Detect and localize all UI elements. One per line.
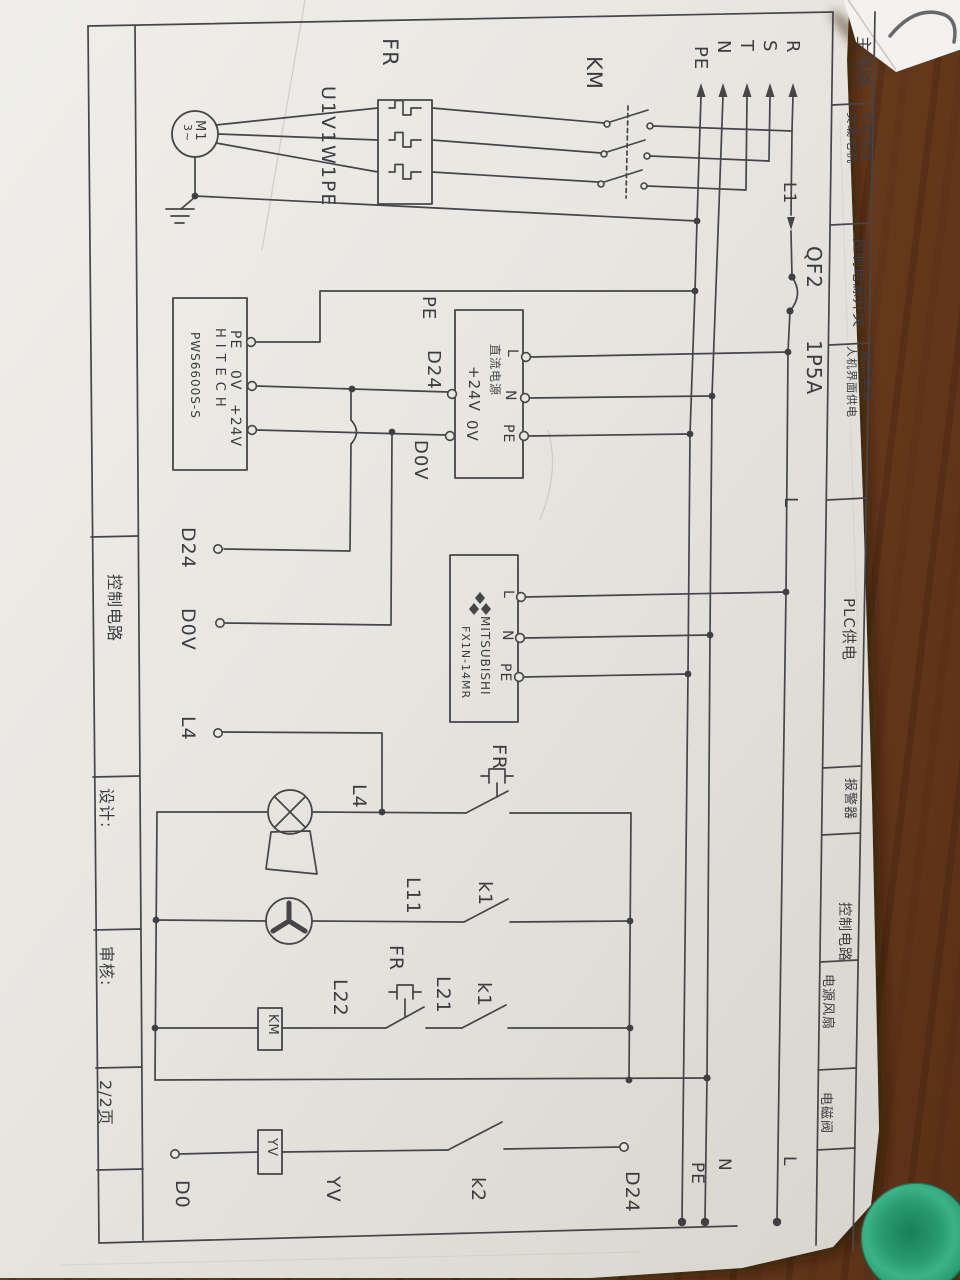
yv-wire-label: YV [323, 1176, 342, 1203]
dc-terminal-l: L [505, 349, 519, 358]
titlebar-review: 审核: [98, 946, 114, 986]
strip-cell-hmi-power: 人机界面供电 [846, 346, 857, 418]
wire-l22: L22 [330, 979, 349, 1017]
wire-l11: L11 [403, 877, 422, 915]
d0v-net-label: D0V [411, 440, 429, 481]
strip-cell-load-motor: 负载电机 [846, 112, 858, 164]
km-contactor-label: KM [583, 56, 604, 90]
hmi-model: PWS6600S-S [189, 332, 201, 419]
green-sticker [861, 1183, 960, 1280]
yv-coil-label: YV [265, 1138, 278, 1157]
fr-contact-label-1: FR [489, 744, 508, 770]
supply-label-pe: PE [691, 46, 709, 70]
k1-contact-label-1: k1 [475, 881, 494, 906]
l-net-label: L [781, 497, 799, 508]
supply-label-r: R [783, 40, 801, 54]
plc-terminal-n: N [500, 630, 514, 641]
k1-contact-label-2: k1 [474, 982, 493, 1007]
titlebar-design: 设计: [98, 788, 114, 828]
hmi-terminal-0v: 0V [228, 370, 242, 390]
km-coil-label: KM [266, 1014, 279, 1036]
bottom-label-l: L [780, 1156, 797, 1166]
plc-model: FX1N-14MR [460, 626, 471, 699]
terminal-d24: D24 [178, 527, 197, 569]
strip-cell-control-power-switch: 控制电源开关 [851, 238, 865, 328]
strip-cell-plc-power: PLC供电 [841, 598, 856, 661]
dc-terminal-24v: +24V [466, 366, 481, 412]
wire-l4: L4 [349, 784, 368, 809]
strip-cell-solenoid-valve: 电磁阀 [819, 1092, 832, 1134]
paper-sheet [0, 0, 879, 1278]
plc-brand: MITSUBISHI [479, 616, 491, 696]
pe-net-label: PE [419, 296, 437, 320]
bottom-label-n: N [715, 1158, 732, 1172]
strip-cell-alarm: 报警器 [843, 778, 856, 820]
plc-terminal-pe: PE [498, 663, 512, 682]
motor-name: M1 [193, 120, 206, 142]
strip-cell-control-circuit: 控制电路 [837, 902, 851, 962]
terminal-l4: L4 [178, 716, 197, 741]
fr-contact-label-2: FR [386, 945, 405, 971]
terminal-d0v: D0V [178, 608, 197, 651]
terminal-d24-out: D24 [622, 1171, 641, 1213]
terminal-d0: D0 [172, 1180, 191, 1209]
dc-terminal-0v: 0V [464, 420, 479, 442]
dc-supply-stamp: 直流电源 [489, 344, 501, 396]
fr-relay-label: FR [379, 38, 400, 67]
qf2-rating-label: 1P5A [804, 340, 824, 395]
bottom-label-pe: PE [688, 1162, 705, 1185]
hmi-brand: HITECH [213, 328, 226, 413]
supply-label-s: S [760, 40, 778, 52]
d24-net-label: D24 [424, 350, 442, 390]
dc-terminal-pe: PE [501, 424, 515, 443]
strip-cell-main-circuit: 主电路 [855, 36, 871, 87]
titlebar-page-number: 2/2页 [97, 1080, 113, 1126]
motor-wire-labels: U1V1W1PE [318, 86, 337, 207]
plc-terminal-l: L [501, 590, 515, 599]
qf2-breaker-label: QF2 [804, 246, 824, 289]
motor-phase: 3~ [182, 124, 193, 142]
k2-contact-label: k2 [468, 1177, 487, 1202]
photo-of-schematic: R S T N PE KM FR U1V1W1PE M1 3~ L1 QF2 1… [0, 0, 960, 1280]
strip-cell-dc-power: 直流电源 [860, 350, 872, 402]
hmi-terminal-24v: +24V [228, 404, 242, 447]
supply-label-t: T [737, 40, 755, 52]
titlebar-section-name: 控制电路 [106, 574, 122, 642]
strip-cell-power-fan: 电源风扇 [821, 974, 834, 1030]
wire-l21: L21 [433, 976, 452, 1014]
supply-label-n: N [714, 40, 732, 54]
hmi-terminal-pe: PE [228, 330, 242, 349]
l1-label: L1 [780, 182, 797, 204]
strip-cell-load-power: 负载电源 [861, 110, 873, 162]
dc-terminal-n: N [503, 390, 517, 401]
